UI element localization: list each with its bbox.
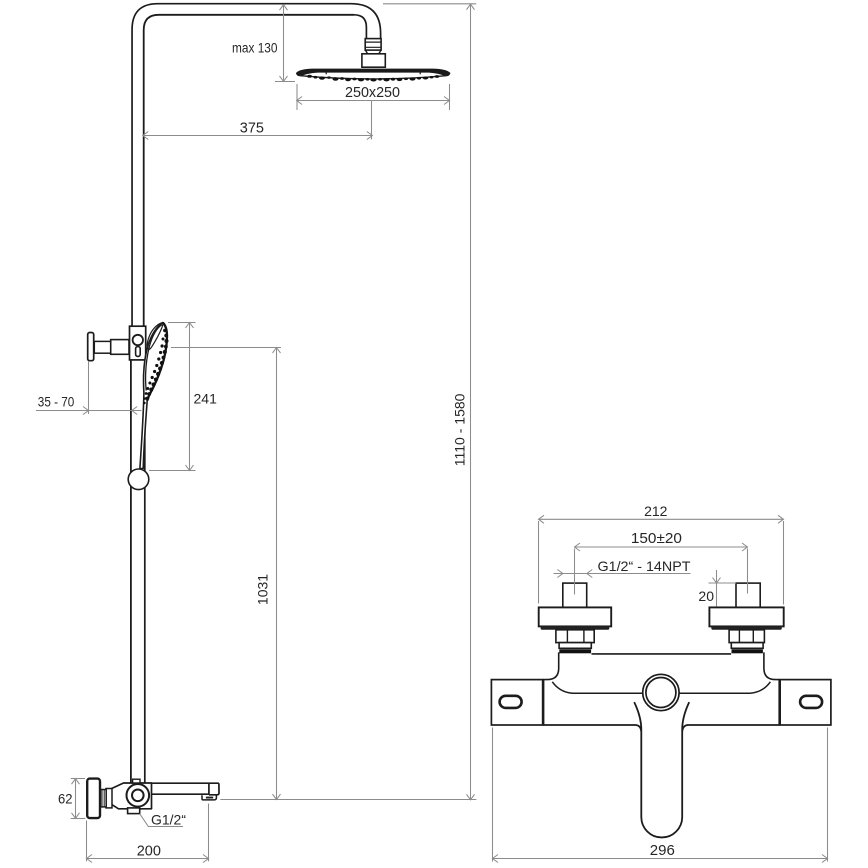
svg-text:62: 62	[58, 791, 73, 807]
svg-text:200: 200	[137, 843, 161, 859]
svg-text:1031: 1031	[254, 574, 270, 605]
svg-text:296: 296	[650, 842, 675, 859]
svg-text:35 - 70: 35 - 70	[38, 393, 75, 409]
svg-text:375: 375	[240, 121, 264, 137]
svg-text:20: 20	[698, 588, 714, 604]
svg-text:G1/2“ - 14NPT: G1/2“ - 14NPT	[598, 558, 691, 574]
svg-text:241: 241	[194, 390, 218, 406]
svg-text:G1/2“: G1/2“	[151, 812, 186, 828]
svg-text:212: 212	[644, 503, 668, 519]
svg-text:1110 - 1580: 1110 - 1580	[452, 393, 468, 466]
svg-text:max 130: max 130	[232, 40, 278, 55]
svg-text:150±20: 150±20	[631, 531, 682, 547]
svg-text:250x250: 250x250	[345, 84, 400, 101]
